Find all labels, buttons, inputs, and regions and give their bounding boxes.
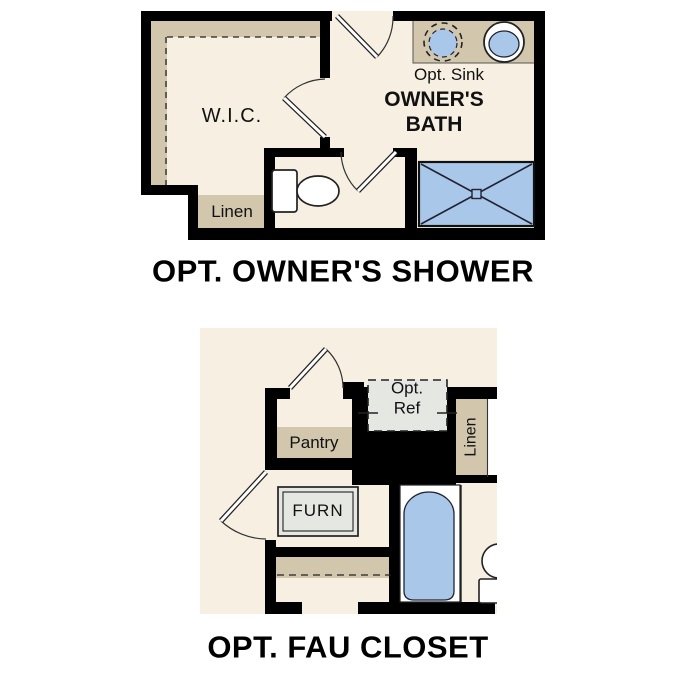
door-swing-icon — [341, 152, 396, 191]
opt-ref-line1: Opt. — [391, 379, 423, 399]
bathtub-icon — [400, 485, 461, 602]
wic-room-label: W.I.C. — [202, 104, 262, 128]
pantry-label: Pantry — [289, 433, 338, 453]
opt-ref-line2: Ref — [391, 399, 423, 419]
linen-label-lower: Linen — [461, 417, 480, 456]
linen-label-upper: Linen — [211, 202, 253, 222]
furn-label: FURN — [292, 501, 343, 521]
door-swing-icon — [284, 79, 325, 137]
sink-basin-icon — [489, 31, 519, 57]
door-swing-icon — [290, 349, 343, 388]
toilet-icon — [479, 544, 516, 603]
owners-bath-line2: BATH — [384, 112, 484, 137]
door-swing-icon — [221, 472, 266, 539]
floorplan-page: { "colors": { "floor": "#f7f0e2", "shelf… — [0, 0, 687, 687]
toilet-icon — [272, 170, 339, 212]
upper-plan-title: OPT. OWNER'S SHOWER — [152, 252, 534, 289]
shower-icon — [419, 162, 534, 226]
lower-plan-title: OPT. FAU CLOSET — [207, 628, 488, 665]
door-swing-icon — [337, 16, 393, 57]
optional-sink-basin-icon — [429, 29, 457, 57]
opt-ref-label: Opt. Ref — [391, 379, 423, 420]
opt-sink-label: Opt. Sink — [414, 65, 484, 85]
owners-bath-line1: OWNER'S — [384, 87, 484, 112]
owners-bath-room-label: OWNER'S BATH — [384, 87, 484, 137]
fixtures-overlay — [0, 0, 687, 687]
